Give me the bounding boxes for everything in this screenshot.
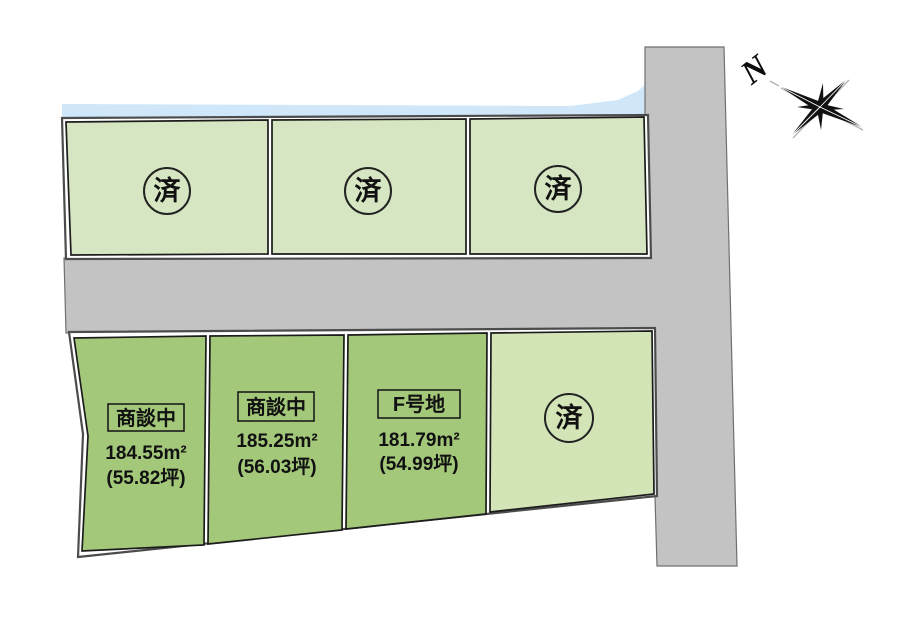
plot-bottom-1: 商談中 184.55m² (55.82坪) bbox=[74, 336, 206, 551]
sold-status-label: 済 bbox=[545, 173, 573, 204]
sold-status-label: 済 bbox=[154, 175, 182, 206]
plot-top-3: 済 bbox=[470, 117, 647, 254]
area-sqm: 184.55m² bbox=[105, 443, 186, 464]
lot-subdivision-map: 済 済 済 商談中 184.55m² (55.82坪) bbox=[0, 0, 900, 622]
map-canvas: 済 済 済 商談中 184.55m² (55.82坪) bbox=[0, 0, 900, 622]
top-block: 済 済 済 bbox=[62, 115, 651, 259]
area-tsubo: (55.82坪) bbox=[106, 467, 185, 489]
area-tsubo: (54.99坪) bbox=[379, 453, 458, 475]
plot-bottom-4: 済 bbox=[490, 331, 654, 512]
negotiation-label: 商談中 bbox=[116, 406, 176, 430]
sold-status-label: 済 bbox=[355, 175, 383, 206]
area-sqm: 185.25m² bbox=[236, 431, 317, 452]
plot-bottom-3: F号地 181.79m² (54.99坪) bbox=[346, 333, 487, 529]
sold-status-label: 済 bbox=[556, 402, 584, 433]
negotiation-label: 商談中 bbox=[246, 395, 306, 419]
plot-bottom-2: 商談中 185.25m² (56.03坪) bbox=[208, 335, 344, 544]
plot-top-2: 済 bbox=[272, 119, 466, 254]
plot-top-1: 済 bbox=[66, 120, 268, 255]
area-tsubo: (56.03坪) bbox=[237, 456, 316, 478]
lot-f-label: F号地 bbox=[393, 393, 445, 416]
area-sqm: 181.79m² bbox=[378, 430, 459, 451]
